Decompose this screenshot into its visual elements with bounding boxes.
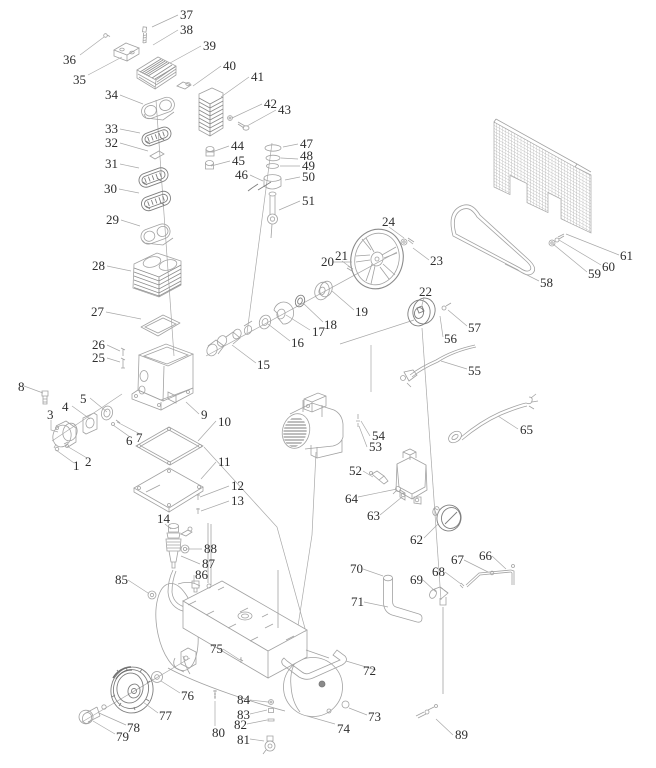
svg-text:64: 64: [345, 491, 359, 506]
svg-text:23: 23: [430, 253, 443, 268]
svg-text:37: 37: [180, 7, 194, 22]
svg-text:63: 63: [367, 508, 380, 523]
svg-text:81: 81: [237, 732, 250, 747]
svg-text:31: 31: [105, 156, 118, 171]
svg-text:51: 51: [302, 193, 315, 208]
svg-text:3: 3: [47, 407, 54, 422]
svg-text:40: 40: [223, 58, 236, 73]
svg-text:88: 88: [204, 541, 217, 556]
svg-text:75: 75: [210, 641, 223, 656]
svg-text:68: 68: [432, 564, 445, 579]
svg-text:25: 25: [92, 350, 105, 365]
svg-text:35: 35: [73, 72, 86, 87]
svg-text:45: 45: [232, 153, 245, 168]
svg-text:20: 20: [321, 254, 334, 269]
svg-text:58: 58: [540, 275, 553, 290]
svg-text:66: 66: [479, 548, 493, 563]
svg-text:77: 77: [159, 708, 173, 723]
svg-text:82: 82: [234, 717, 247, 732]
svg-text:22: 22: [419, 284, 432, 299]
svg-text:4: 4: [62, 399, 69, 414]
svg-text:17: 17: [312, 324, 326, 339]
svg-text:1: 1: [73, 458, 80, 473]
svg-text:69: 69: [410, 572, 423, 587]
svg-text:34: 34: [105, 87, 119, 102]
svg-text:27: 27: [91, 304, 105, 319]
svg-text:84: 84: [237, 692, 251, 707]
svg-text:30: 30: [104, 181, 117, 196]
svg-text:70: 70: [350, 561, 363, 576]
svg-text:8: 8: [18, 379, 25, 394]
svg-text:43: 43: [278, 102, 291, 117]
svg-text:39: 39: [203, 38, 216, 53]
svg-text:7: 7: [136, 430, 143, 445]
svg-text:46: 46: [235, 167, 249, 182]
svg-text:62: 62: [410, 532, 423, 547]
svg-text:86: 86: [195, 567, 209, 582]
svg-text:59: 59: [588, 266, 601, 281]
svg-text:72: 72: [363, 663, 376, 678]
svg-text:13: 13: [231, 493, 244, 508]
svg-text:65: 65: [520, 422, 533, 437]
svg-text:52: 52: [349, 463, 362, 478]
svg-text:44: 44: [231, 138, 245, 153]
svg-text:76: 76: [181, 688, 195, 703]
svg-text:67: 67: [451, 552, 465, 567]
svg-text:56: 56: [444, 331, 458, 346]
svg-text:89: 89: [455, 727, 468, 742]
svg-text:55: 55: [468, 363, 481, 378]
svg-text:80: 80: [212, 725, 225, 740]
svg-text:9: 9: [201, 407, 208, 422]
svg-text:24: 24: [382, 214, 396, 229]
svg-text:6: 6: [126, 433, 133, 448]
svg-text:71: 71: [351, 594, 364, 609]
svg-text:73: 73: [368, 709, 381, 724]
svg-text:16: 16: [291, 335, 305, 350]
svg-text:14: 14: [157, 511, 171, 526]
svg-text:2: 2: [85, 454, 92, 469]
svg-text:10: 10: [218, 414, 231, 429]
svg-text:33: 33: [105, 121, 118, 136]
svg-text:36: 36: [63, 52, 77, 67]
svg-text:38: 38: [180, 22, 193, 37]
svg-text:28: 28: [92, 258, 105, 273]
svg-text:32: 32: [105, 135, 118, 150]
svg-text:29: 29: [106, 212, 119, 227]
svg-text:42: 42: [264, 96, 277, 111]
svg-text:41: 41: [251, 69, 264, 84]
svg-text:19: 19: [355, 304, 368, 319]
svg-text:85: 85: [115, 572, 128, 587]
svg-text:12: 12: [231, 478, 244, 493]
svg-text:57: 57: [468, 320, 482, 335]
svg-text:61: 61: [620, 248, 633, 263]
svg-text:60: 60: [602, 259, 615, 274]
svg-text:50: 50: [302, 169, 315, 184]
svg-text:53: 53: [369, 439, 382, 454]
svg-text:11: 11: [218, 454, 231, 469]
svg-text:18: 18: [324, 317, 337, 332]
svg-text:79: 79: [116, 729, 129, 744]
svg-text:21: 21: [335, 248, 348, 263]
svg-text:15: 15: [257, 357, 270, 372]
svg-text:5: 5: [80, 391, 87, 406]
svg-text:74: 74: [337, 721, 351, 736]
